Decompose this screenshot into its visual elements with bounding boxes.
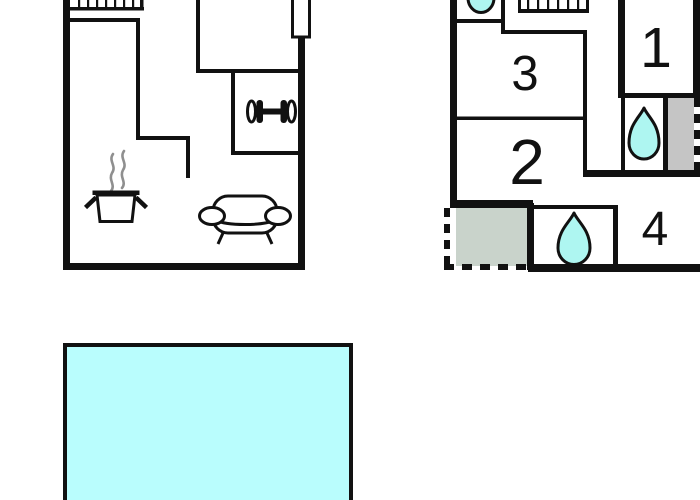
floor-plan-living (63, 0, 310, 270)
pot-body (97, 195, 135, 222)
room-label-3: 3 (511, 47, 538, 101)
storage-box (668, 98, 697, 170)
floor-plan-canvas: 1 2 3 4 (0, 0, 700, 500)
room-label-2: 2 (509, 126, 545, 198)
room-label-1: 1 (640, 16, 672, 80)
swimming-pool (65, 345, 351, 500)
chimney-icon (293, 0, 310, 37)
floor-plan-drawing: 1 2 3 4 (0, 0, 700, 500)
water-drop-icon (558, 213, 590, 265)
water-drop-icon (629, 108, 659, 159)
cooking-pot-icon (86, 151, 147, 222)
room-label-4: 4 (642, 203, 669, 256)
sofa-icon (200, 196, 291, 244)
staircase-icon (518, 0, 589, 13)
dumbbell-icon (248, 100, 296, 123)
floor-plan-bedrooms: 1 2 3 4 (444, 0, 700, 272)
washbasin-icon (468, 0, 494, 13)
staircase-icon (70, 0, 144, 11)
terrace (444, 208, 528, 270)
steam-lines (111, 151, 125, 191)
